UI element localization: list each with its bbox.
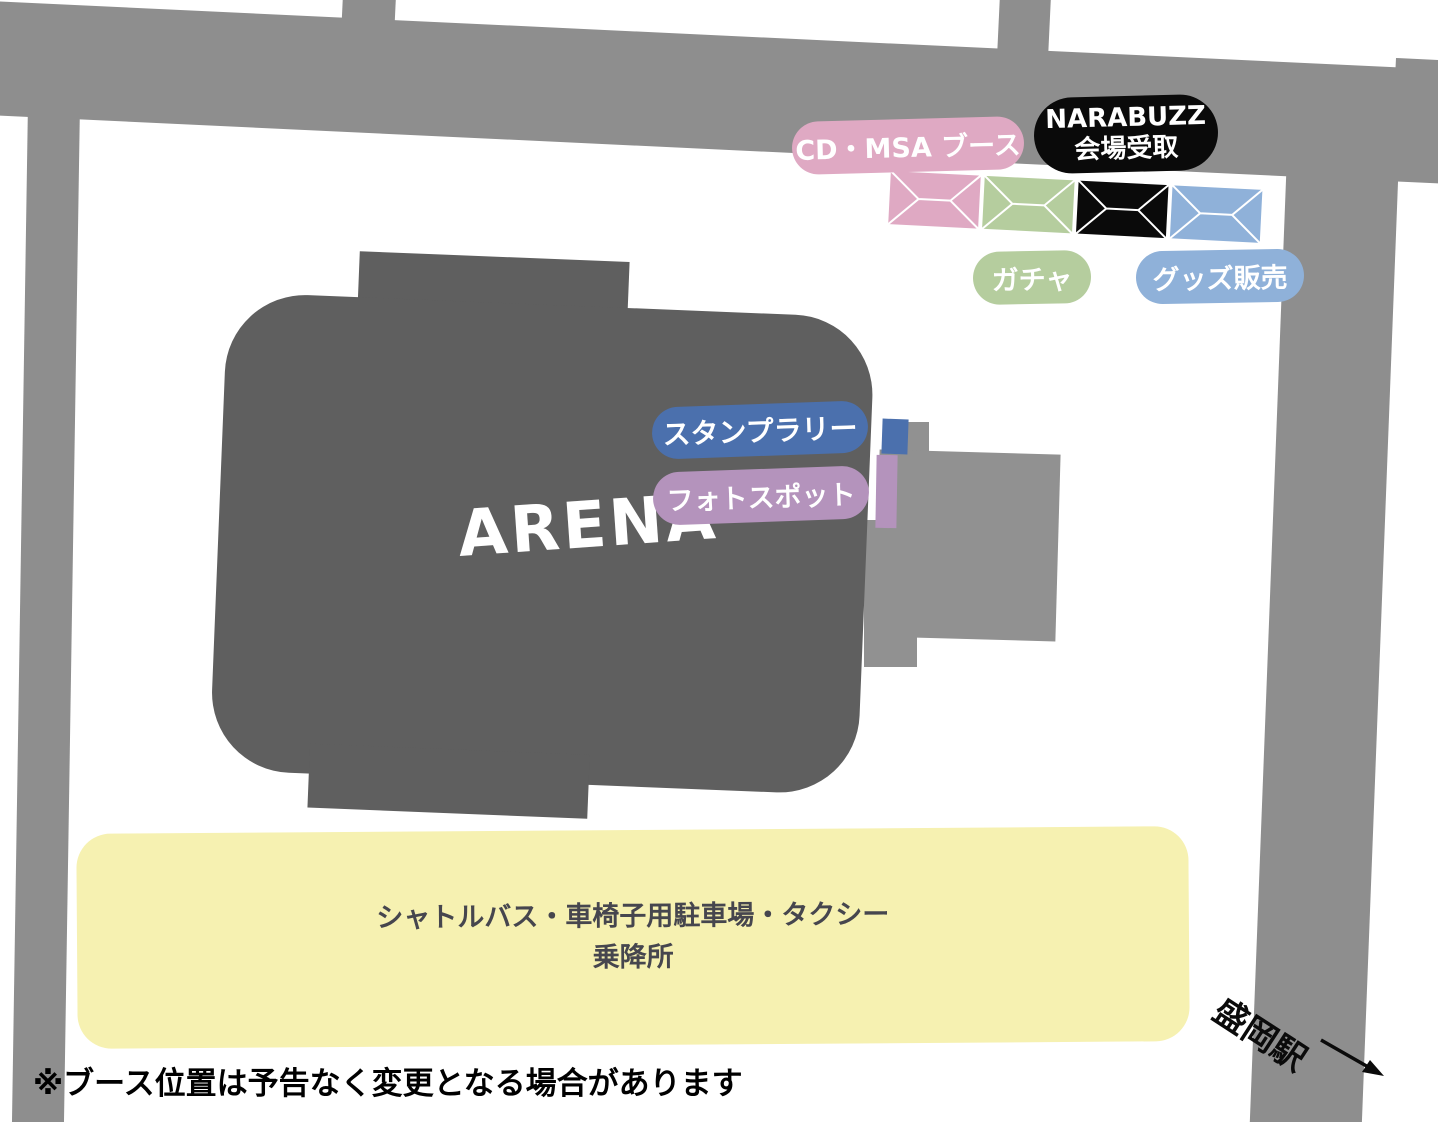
shuttle-bus-area: シャトルバス・車椅子用駐車場・タクシー 乗降所 [76,826,1189,1049]
goods-booth-tent [1168,183,1265,245]
goods-booth-label: グッズ販売 [1136,249,1305,305]
shuttle-area-label-line2: 乗降所 [593,937,674,978]
road-stub-top-middle [997,0,1051,70]
arena-bottom-wing [307,744,589,819]
gacha-booth-label: ガチャ [973,250,1092,305]
road-top [0,1,1438,184]
station-direction-arrow [1318,1036,1398,1088]
photo-spot-label: フォトスポット [652,465,870,526]
narabuzz-pickup-booth-tent [1074,179,1171,241]
booth-tent-row [886,169,1264,245]
venue-map: シャトルバス・車椅子用駐車場・タクシー 乗降所 ARENA C [0,0,1438,1122]
disclaimer-note: ※ブース位置は予告なく変更となる場合があります [33,1058,743,1103]
road-arm-top-right [1395,58,1438,80]
narabuzz-pickup-label-line1: NARABUZZ [1045,101,1206,136]
road-stub-top-left [341,0,396,42]
narabuzz-pickup-label-line2: 会場受取 [1074,133,1179,166]
gacha-booth-tent [980,174,1077,236]
road-left-vertical [12,102,80,1122]
stamp-rally-marker [881,419,908,455]
stamp-rally-label: スタンプラリー [651,400,869,460]
cd-msa-booth-label: CD・MSA ブース [791,116,1024,175]
photo-spot-marker [875,455,897,528]
narabuzz-pickup-label: NARABUZZ 会場受取 [1033,94,1219,175]
shuttle-area-label-line1: シャトルバス・車椅子用駐車場・タクシー [376,895,889,939]
cd-msa-booth-tent [886,169,983,231]
entrance-plaza-lower [864,520,917,667]
